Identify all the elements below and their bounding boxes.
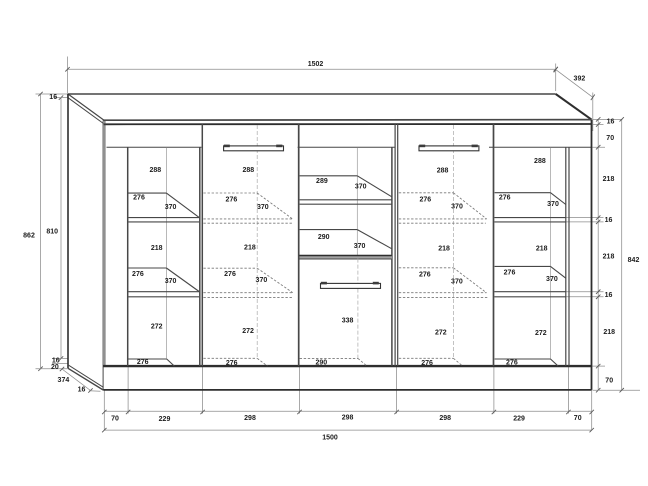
svg-text:370: 370 (355, 183, 367, 190)
svg-text:16: 16 (605, 292, 613, 299)
svg-text:70: 70 (111, 415, 119, 422)
svg-text:862: 862 (23, 233, 35, 240)
svg-text:289: 289 (316, 178, 328, 185)
svg-text:272: 272 (435, 330, 447, 337)
svg-text:218: 218 (603, 329, 615, 336)
svg-text:276: 276 (421, 360, 433, 367)
svg-text:290: 290 (318, 234, 330, 241)
svg-text:298: 298 (439, 415, 451, 422)
svg-text:810: 810 (46, 229, 58, 236)
svg-text:218: 218 (438, 246, 450, 253)
svg-text:20: 20 (51, 364, 59, 371)
svg-text:338: 338 (342, 317, 354, 324)
svg-text:298: 298 (244, 415, 256, 422)
svg-text:16: 16 (49, 94, 57, 101)
svg-text:70: 70 (574, 415, 582, 422)
svg-text:218: 218 (151, 245, 163, 252)
svg-text:16: 16 (605, 217, 613, 224)
svg-text:288: 288 (242, 167, 254, 174)
svg-text:16: 16 (607, 119, 615, 126)
svg-text:218: 218 (603, 176, 615, 183)
svg-text:276: 276 (504, 269, 516, 276)
svg-text:276: 276 (419, 271, 431, 278)
svg-text:374: 374 (58, 377, 70, 384)
svg-text:370: 370 (451, 204, 463, 211)
svg-text:276: 276 (137, 359, 149, 366)
svg-text:370: 370 (546, 276, 558, 283)
svg-text:290: 290 (315, 360, 327, 367)
svg-text:276: 276 (133, 195, 145, 202)
svg-text:392: 392 (574, 76, 586, 83)
svg-text:272: 272 (535, 330, 547, 337)
svg-text:298: 298 (342, 415, 354, 422)
svg-text:70: 70 (605, 378, 613, 385)
svg-text:276: 276 (224, 271, 236, 278)
svg-text:1500: 1500 (322, 435, 338, 442)
svg-text:229: 229 (513, 416, 525, 423)
svg-text:276: 276 (506, 359, 518, 366)
svg-text:229: 229 (159, 416, 171, 423)
svg-text:842: 842 (628, 257, 640, 264)
svg-text:218: 218 (536, 245, 548, 252)
svg-text:218: 218 (244, 244, 256, 251)
svg-text:276: 276 (226, 197, 238, 204)
svg-text:276: 276 (499, 195, 511, 202)
svg-text:16: 16 (78, 386, 86, 393)
svg-text:272: 272 (151, 324, 163, 331)
svg-text:370: 370 (257, 204, 269, 211)
svg-text:370: 370 (451, 278, 463, 285)
svg-text:370: 370 (165, 278, 177, 285)
svg-text:276: 276 (132, 271, 144, 278)
svg-text:276: 276 (226, 360, 238, 367)
svg-text:1502: 1502 (308, 61, 324, 68)
svg-text:370: 370 (354, 243, 366, 250)
svg-text:370: 370 (165, 204, 177, 211)
svg-text:272: 272 (242, 328, 254, 335)
svg-text:288: 288 (534, 158, 546, 165)
svg-text:276: 276 (419, 197, 431, 204)
svg-text:370: 370 (256, 277, 268, 284)
svg-text:70: 70 (606, 135, 614, 142)
svg-text:370: 370 (547, 201, 559, 208)
svg-text:218: 218 (603, 254, 615, 261)
svg-text:288: 288 (149, 167, 161, 174)
svg-text:288: 288 (437, 167, 449, 174)
